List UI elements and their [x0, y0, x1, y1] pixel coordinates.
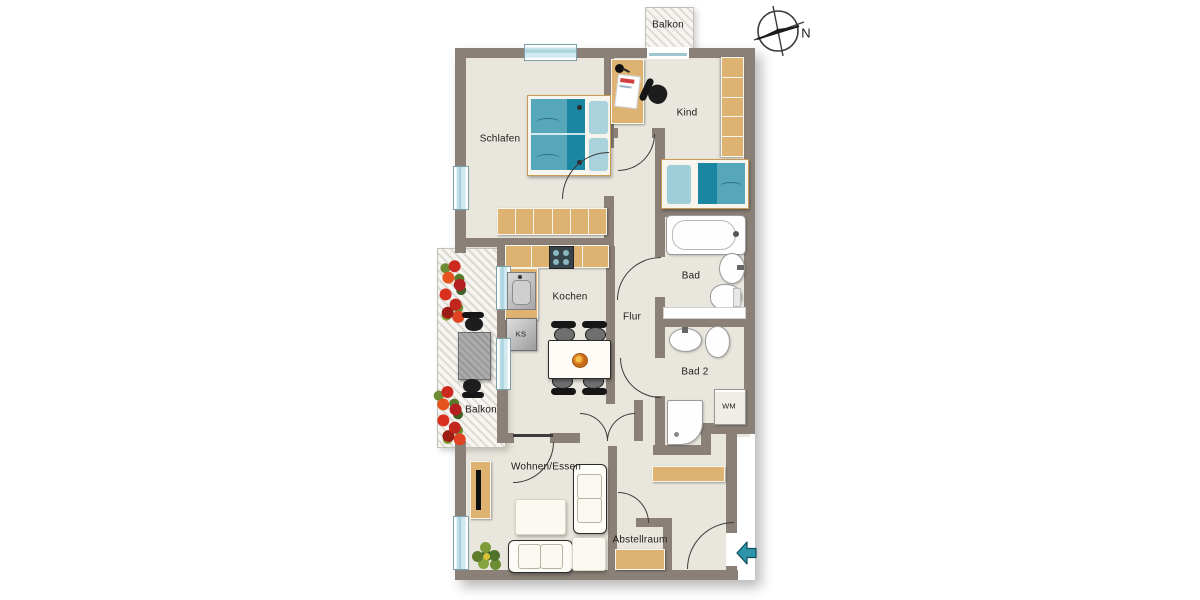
room-label-wohnen-essen: Wohnen/Essen: [511, 462, 581, 473]
wall-segment: [655, 318, 755, 327]
paper-marking: [620, 78, 634, 84]
sink-tap: [518, 275, 522, 279]
blanket-wave: [536, 154, 560, 162]
cabinet: [506, 246, 531, 267]
desk-lamp-arm: [621, 67, 630, 73]
kitchen-sink: [507, 272, 536, 310]
blanket-wave: [536, 118, 560, 126]
compass-north-label: N: [801, 26, 811, 41]
coffee-table: [515, 499, 566, 535]
wall-segment: [497, 386, 508, 433]
toilet2: [705, 326, 730, 358]
appliance-label-ks: KS: [516, 330, 526, 339]
wall-segment: [455, 570, 738, 580]
wardrobe-door: [498, 209, 515, 234]
bathroom-sink: [719, 253, 745, 284]
toilet-tank: [733, 288, 741, 307]
fruit-bowl: [572, 353, 588, 368]
window: [496, 338, 511, 390]
wall-segment: [634, 400, 643, 441]
sofa-two-seater: [508, 540, 573, 573]
reading-light: [577, 105, 582, 110]
sink-tap: [737, 265, 744, 270]
balcony-table: [458, 332, 491, 380]
balcony-door-glass-top: [649, 53, 687, 56]
flower-blossoms: [448, 260, 461, 273]
room-label-kochen: Kochen: [552, 292, 587, 303]
cabinet: [583, 246, 608, 267]
floor-plan: Balkon Schlafen Kind Bad Flur Kochen KS …: [0, 0, 1200, 600]
wardrobe-kind: [721, 57, 744, 157]
wardrobe-door: [722, 137, 743, 156]
bed-split-line: [531, 133, 585, 135]
stove: [549, 246, 574, 269]
dining-table: [548, 340, 611, 379]
wall-segment: [701, 431, 711, 455]
pillow: [666, 164, 692, 205]
room-label-abstellraum: Abstellraum: [613, 535, 668, 546]
tv: [476, 470, 481, 510]
tv-sideboard: [470, 461, 491, 519]
wardrobe-door: [516, 209, 533, 234]
sink-tap: [682, 327, 688, 333]
wall-segment: [726, 431, 737, 533]
window: [453, 516, 469, 570]
potted-plant: [470, 540, 504, 570]
balcony-chair: [462, 380, 484, 398]
burner: [553, 250, 559, 256]
wardrobe-door: [553, 209, 570, 234]
bathtub: [666, 215, 746, 255]
paper-marking: [619, 85, 631, 88]
blanket-wave: [720, 182, 742, 190]
wardrobe-door: [571, 209, 588, 234]
wardrobe-door: [722, 98, 743, 117]
shower-drain: [674, 432, 679, 437]
hall-shelf: [652, 466, 725, 482]
single-bed-kind: [661, 159, 749, 209]
wardrobe-door: [722, 117, 743, 136]
bathroom2-sink: [669, 328, 702, 352]
entry-arrow-icon: [736, 540, 758, 566]
window: [524, 44, 577, 61]
wardrobe-door: [722, 78, 743, 97]
sofa-cushion: [577, 474, 602, 499]
wardrobe-schlafen: [497, 208, 607, 235]
room-label-schlafen: Schlafen: [480, 134, 521, 145]
sofa-right: [573, 464, 607, 534]
plant-leaves: [480, 542, 491, 553]
wall-segment: [655, 217, 665, 257]
desk-paper: [614, 74, 641, 110]
wall-segment: [462, 48, 755, 58]
window: [453, 166, 469, 210]
room-label-flur: Flur: [623, 312, 641, 323]
desk-kind: [611, 59, 644, 124]
storage-shelf: [615, 549, 665, 570]
wardrobe-door: [589, 209, 606, 234]
bathtub-faucet: [733, 231, 739, 237]
room-label-bad2: Bad 2: [681, 367, 708, 378]
bathtub-basin: [672, 220, 736, 250]
wall-segment: [606, 246, 615, 404]
wall-segment: [497, 433, 514, 443]
room-label-balkon-top: Balkon: [652, 20, 684, 31]
sofa-cushion: [577, 498, 602, 523]
sofa-cushion: [540, 544, 563, 569]
room-label-kind: Kind: [677, 108, 698, 119]
pillow: [588, 100, 609, 135]
sofa-cushion: [518, 544, 541, 569]
door-leaf-balcony-left: [513, 434, 553, 437]
room-label-balkon-left: Balkon: [465, 405, 497, 416]
appliance-label-wm: WM: [722, 402, 736, 411]
armchair: [572, 537, 606, 571]
flower-blossoms: [441, 386, 454, 399]
wardrobe-door: [534, 209, 551, 234]
dining-chair: [551, 321, 576, 341]
dining-chair: [582, 321, 607, 341]
bed-blanket-fold: [698, 163, 717, 204]
wall-segment: [653, 445, 703, 455]
wall-segment: [550, 433, 580, 443]
bath-counter: [663, 307, 746, 319]
sink-basin: [512, 280, 531, 305]
room-label-bad: Bad: [682, 271, 700, 282]
wall-segment: [455, 48, 466, 253]
balcony-chair: [462, 312, 484, 330]
wardrobe-door: [722, 58, 743, 77]
plant-center: [483, 553, 490, 560]
